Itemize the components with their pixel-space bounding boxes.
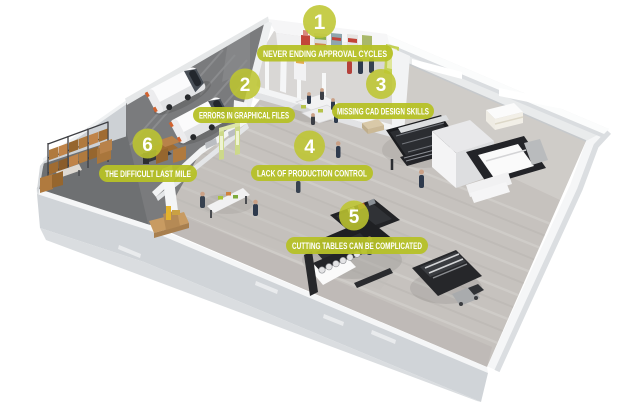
svg-text:6: 6 [142,135,153,156]
svg-text:1: 1 [314,11,326,34]
svg-text:3: 3 [376,75,387,96]
svg-text:MISSING CAD DESIGN SKILLS: MISSING CAD DESIGN SKILLS [337,107,429,117]
svg-text:CUTTING TABLES CAN BE COMPLICA: CUTTING TABLES CAN BE COMPLICATED [292,241,422,251]
svg-text:2: 2 [240,75,251,96]
svg-text:4: 4 [304,137,315,158]
svg-text:ERRORS IN GRAPHICAL FILES: ERRORS IN GRAPHICAL FILES [199,111,289,121]
svg-text:THE DIFFICULT LAST MILE: THE DIFFICULT LAST MILE [105,169,191,179]
svg-text:LACK OF PRODUCTION CONTROL: LACK OF PRODUCTION CONTROL [257,169,367,179]
svg-text:NEVER ENDING APPROVAL CYCLES: NEVER ENDING APPROVAL CYCLES [263,49,387,59]
svg-text:5: 5 [349,207,360,228]
